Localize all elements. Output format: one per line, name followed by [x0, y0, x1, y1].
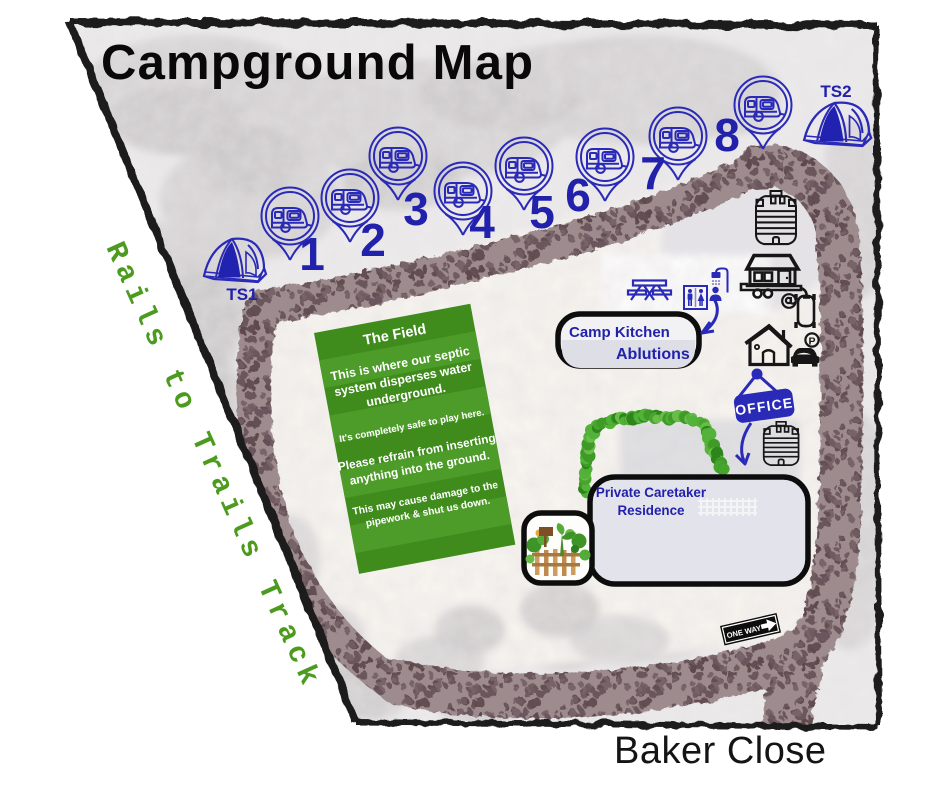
- svg-text:2: 2: [360, 214, 386, 266]
- svg-text:7: 7: [640, 147, 666, 199]
- svg-text:Camp Kitchen: Camp Kitchen: [569, 324, 670, 341]
- svg-text:6: 6: [565, 169, 591, 221]
- svg-text:Residence: Residence: [618, 503, 685, 518]
- svg-text:5: 5: [529, 186, 555, 238]
- svg-text:Ablutions: Ablutions: [616, 346, 690, 363]
- svg-text:3: 3: [403, 183, 429, 235]
- svg-text:Baker Close: Baker Close: [614, 730, 826, 772]
- svg-text:8: 8: [714, 109, 740, 161]
- svg-text:TS2: TS2: [820, 82, 851, 101]
- svg-text:4: 4: [469, 196, 495, 248]
- svg-text:1: 1: [299, 228, 325, 280]
- svg-text:Campground Map: Campground Map: [101, 36, 534, 90]
- svg-text:TS1: TS1: [226, 285, 257, 304]
- svg-text:Private Caretaker: Private Caretaker: [596, 485, 707, 500]
- svg-text:P: P: [808, 336, 815, 348]
